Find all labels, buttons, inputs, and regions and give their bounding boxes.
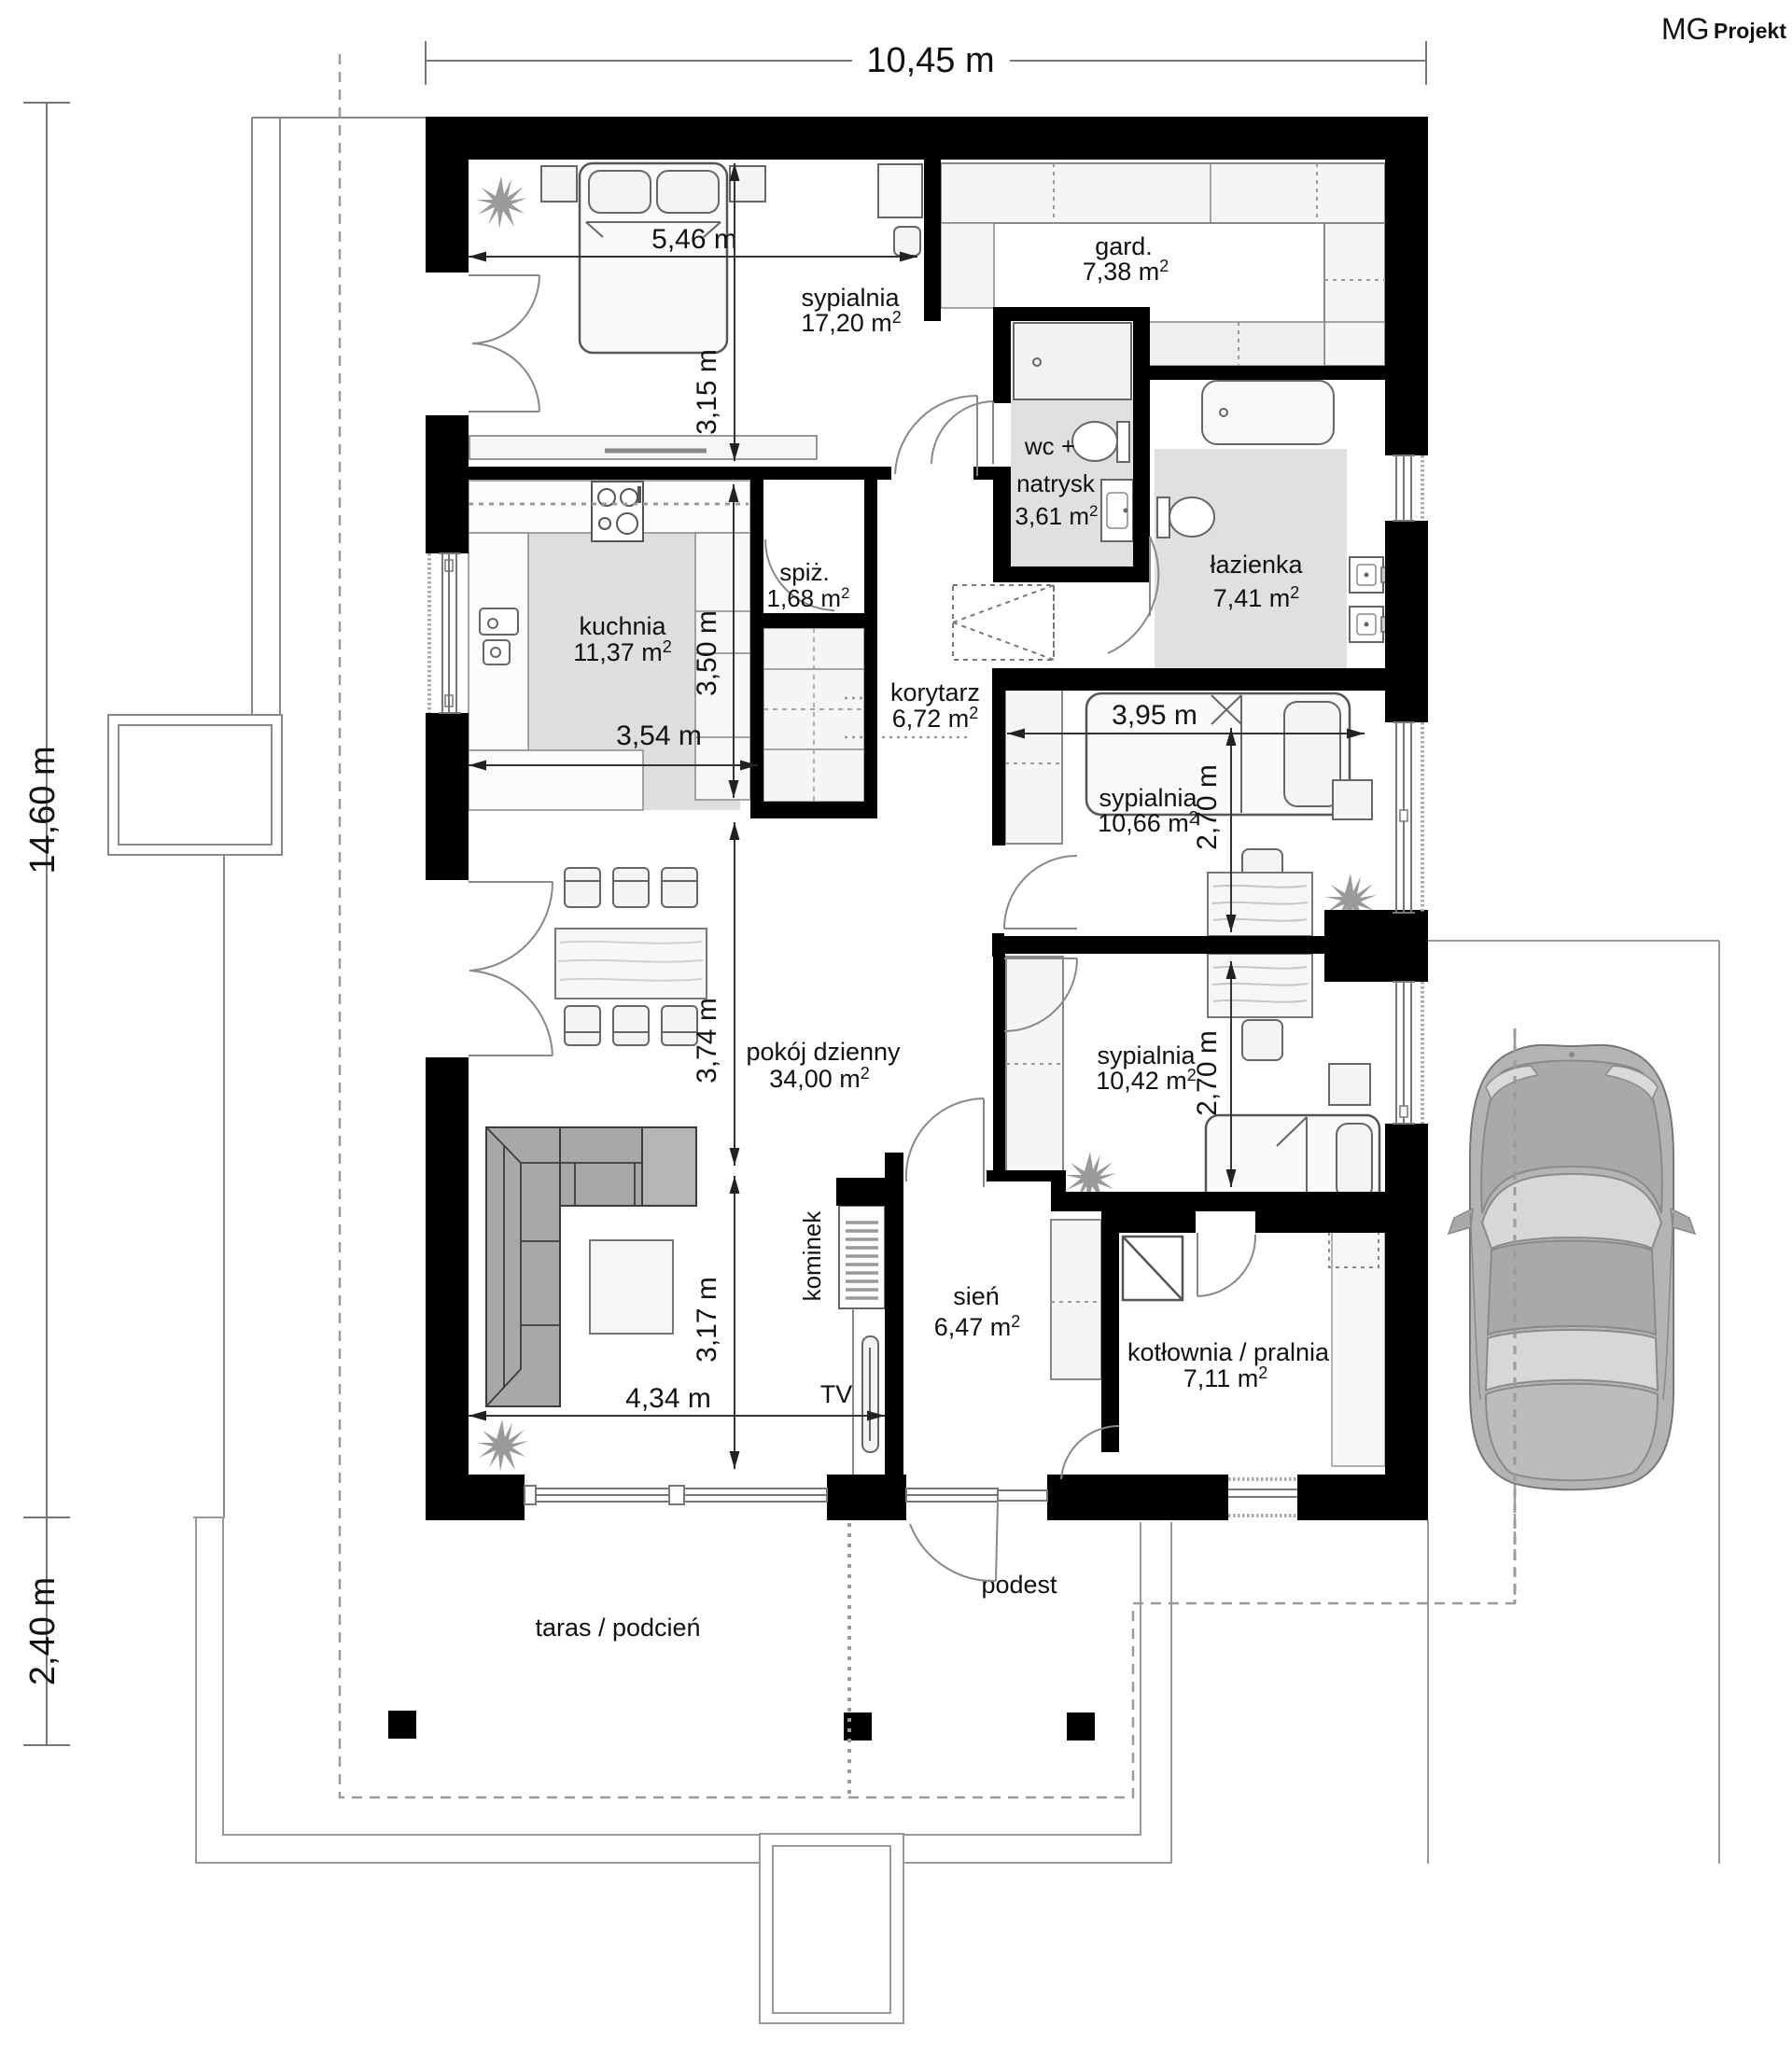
svg-text:5,46 m: 5,46 m [651, 224, 737, 255]
svg-text:TV: TV [820, 1380, 853, 1408]
svg-text:10,42 m2: 10,42 m2 [1096, 1066, 1197, 1095]
svg-text:MG: MG [1661, 12, 1710, 46]
svg-text:korytarz: korytarz [890, 678, 980, 706]
svg-text:Projekt: Projekt [1714, 19, 1786, 43]
svg-text:10,45 m: 10,45 m [866, 41, 994, 80]
svg-text:sień: sień [953, 1282, 1000, 1310]
svg-text:kotłownia / pralnia: kotłownia / pralnia [1127, 1338, 1330, 1366]
svg-text:3,50 m: 3,50 m [692, 610, 722, 696]
svg-text:1,68 m2: 1,68 m2 [767, 584, 850, 612]
svg-text:pokój dzienny: pokój dzienny [746, 1038, 901, 1066]
svg-text:sypialnia: sypialnia [1097, 1041, 1196, 1069]
svg-text:sypialnia: sypialnia [801, 284, 900, 312]
svg-text:7,38 m2: 7,38 m2 [1083, 257, 1169, 286]
svg-text:podest: podest [981, 1571, 1057, 1599]
svg-text:3,54 m: 3,54 m [616, 720, 702, 751]
svg-text:3,74 m: 3,74 m [692, 998, 722, 1083]
svg-text:2,70 m: 2,70 m [1192, 1030, 1223, 1116]
svg-text:taras / podcień: taras / podcień [535, 1614, 700, 1642]
svg-text:17,20 m2: 17,20 m2 [801, 308, 902, 337]
svg-text:34,00 m2: 34,00 m2 [769, 1064, 870, 1093]
svg-text:3,17 m: 3,17 m [692, 1277, 722, 1363]
svg-text:11,37 m2: 11,37 m2 [573, 637, 672, 666]
svg-text:kominek: kominek [798, 1210, 826, 1302]
svg-text:6,47 m2: 6,47 m2 [934, 1312, 1021, 1341]
svg-text:spiż.: spiż. [779, 558, 829, 586]
svg-text:2,40 m: 2,40 m [23, 1577, 63, 1685]
svg-text:sypialnia: sypialnia [1099, 784, 1197, 812]
svg-text:wc +: wc + [1024, 432, 1075, 460]
svg-text:łazienka: łazienka [1210, 551, 1303, 579]
svg-text:14,60 m: 14,60 m [23, 746, 63, 874]
svg-text:gard.: gard. [1095, 232, 1153, 260]
svg-text:3,95 m: 3,95 m [1112, 700, 1197, 731]
svg-text:kuchnia: kuchnia [579, 612, 666, 640]
svg-text:10,66 m2: 10,66 m2 [1098, 808, 1198, 837]
svg-text:natrysk: natrysk [1016, 469, 1096, 497]
svg-text:6,72 m2: 6,72 m2 [892, 704, 979, 733]
svg-text:7,41 m2: 7,41 m2 [1213, 583, 1300, 612]
svg-text:3,61 m2: 3,61 m2 [1015, 502, 1099, 530]
svg-text:3,15 m: 3,15 m [692, 349, 722, 435]
svg-text:4,34 m: 4,34 m [625, 1383, 711, 1414]
svg-text:7,11 m2: 7,11 m2 [1183, 1363, 1268, 1392]
